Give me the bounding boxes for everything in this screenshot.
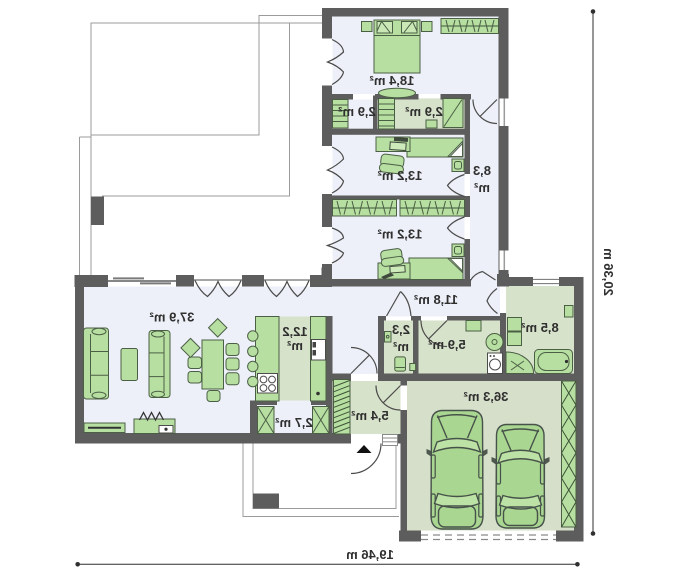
- svg-text:m²: m²: [473, 180, 490, 195]
- svg-text:11,8 m²: 11,8 m²: [413, 292, 458, 307]
- svg-text:8,3: 8,3: [473, 163, 491, 178]
- svg-text:m²: m²: [392, 339, 409, 354]
- svg-text:13,2 m²: 13,2 m²: [377, 168, 422, 183]
- svg-text:5,9 m²: 5,9 m²: [428, 337, 466, 352]
- svg-text:37,9 m²: 37,9 m²: [149, 310, 194, 325]
- svg-text:2,7 m²: 2,7 m²: [275, 415, 313, 430]
- svg-text:2,9 m²: 2,9 m²: [338, 104, 376, 119]
- svg-text:5,4 m²: 5,4 m²: [351, 408, 389, 423]
- svg-text:19,46 m: 19,46 m: [346, 547, 394, 562]
- svg-text:m²: m²: [286, 338, 303, 353]
- svg-text:13,2 m²: 13,2 m²: [377, 227, 422, 242]
- svg-text:8,5 m²: 8,5 m²: [521, 320, 559, 335]
- svg-text:12,2: 12,2: [282, 324, 307, 339]
- svg-text:18,4 m²: 18,4 m²: [369, 73, 414, 88]
- svg-text:20,36 m: 20,36 m: [601, 248, 616, 296]
- svg-text:2,9 m²: 2,9 m²: [405, 104, 443, 119]
- svg-text:2,3: 2,3: [392, 322, 410, 337]
- svg-text:36,3 m²: 36,3 m²: [463, 389, 508, 404]
